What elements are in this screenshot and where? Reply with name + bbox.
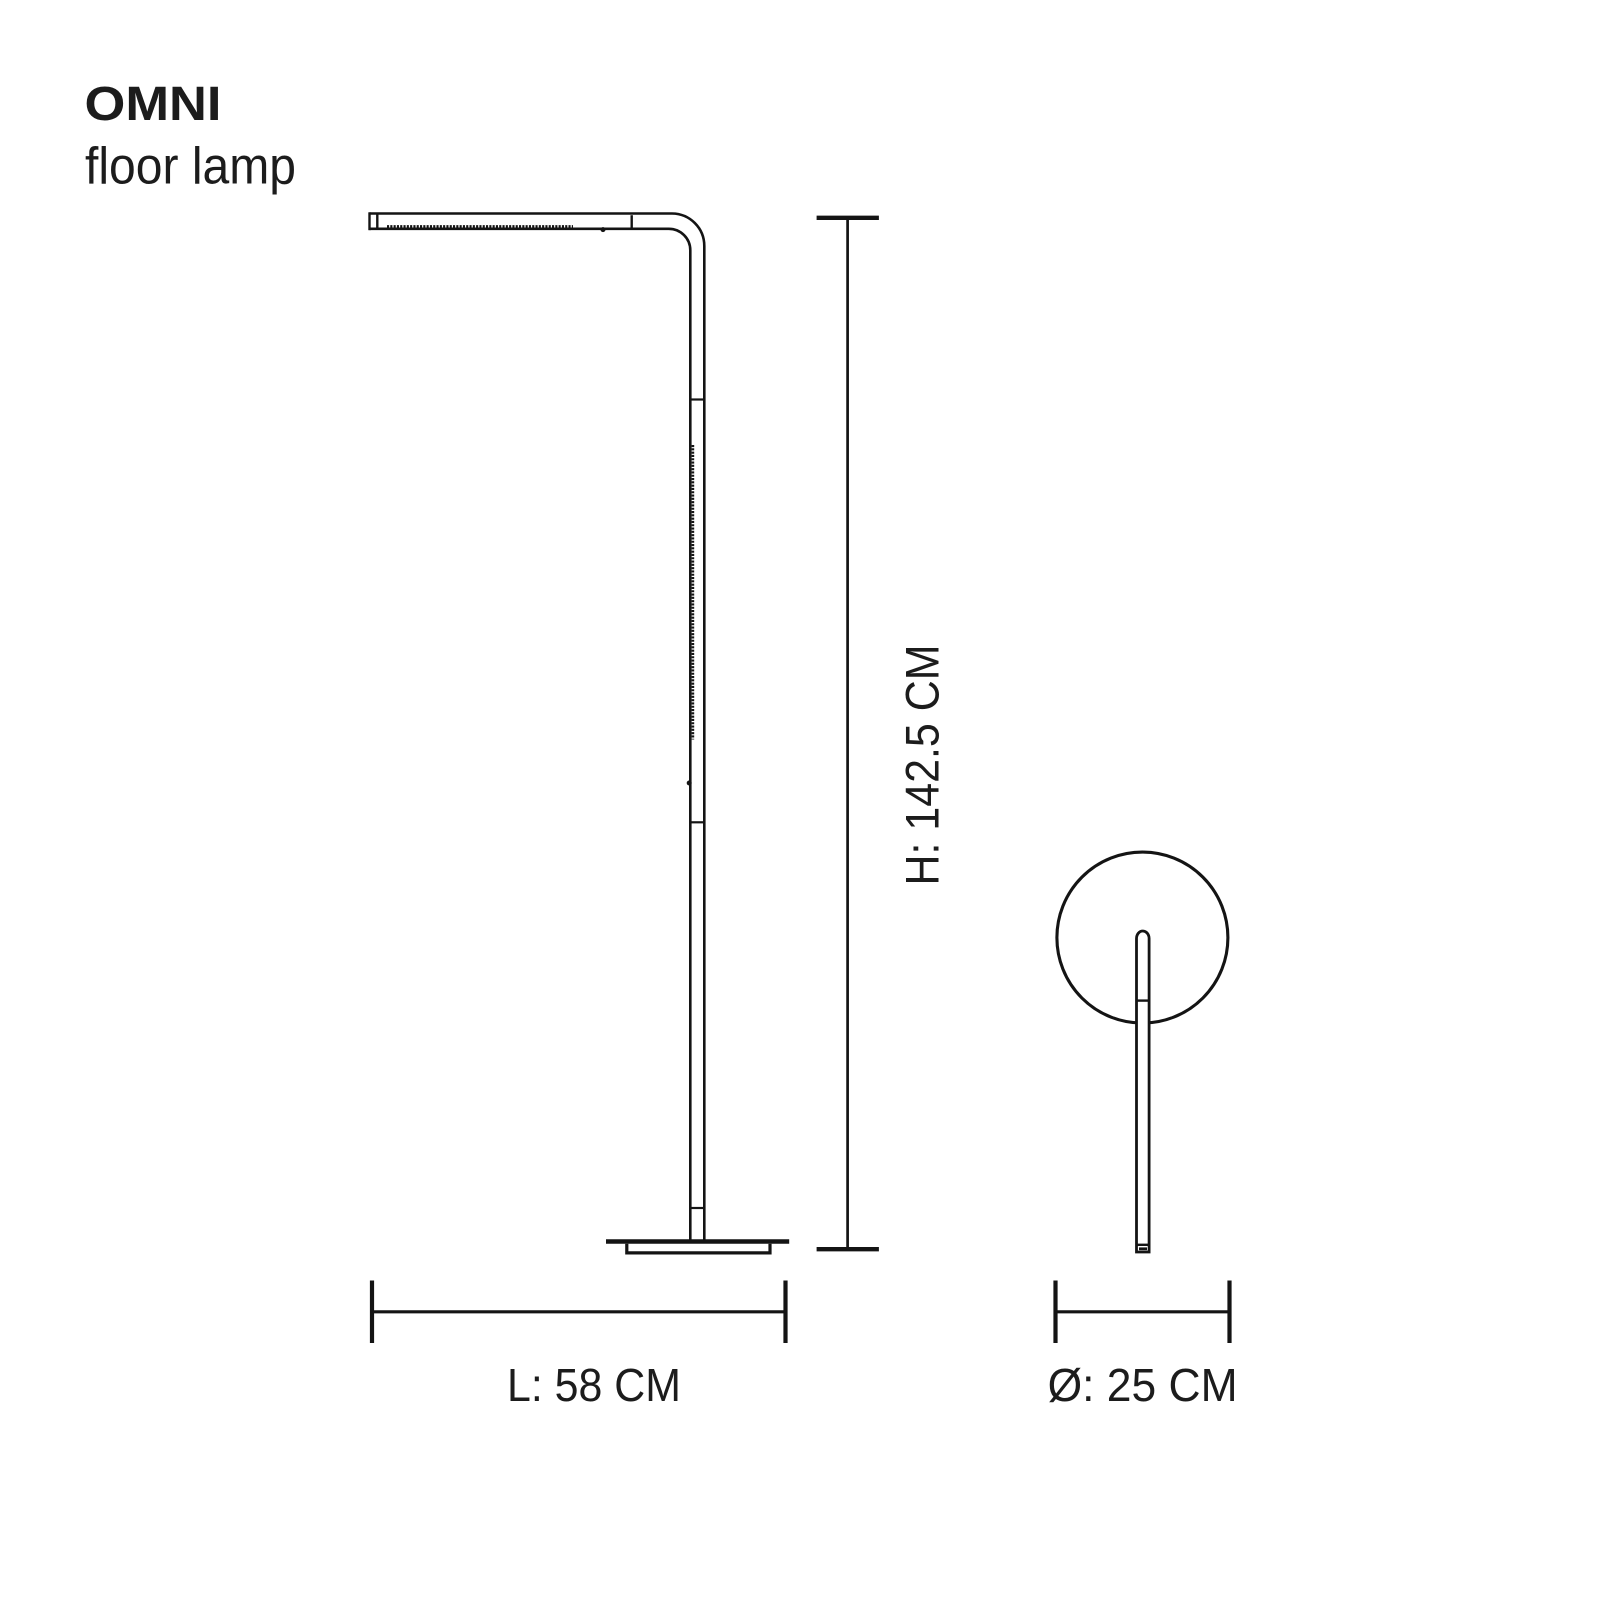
svg-text:H: 142.5 CM: H: 142.5 CM bbox=[896, 645, 949, 886]
svg-text:OMNI: OMNI bbox=[85, 78, 222, 131]
svg-text:L: 58 CM: L: 58 CM bbox=[507, 1359, 681, 1411]
svg-text:Ø: 25 CM: Ø: 25 CM bbox=[1048, 1359, 1238, 1411]
svg-text:floor lamp: floor lamp bbox=[85, 138, 296, 196]
